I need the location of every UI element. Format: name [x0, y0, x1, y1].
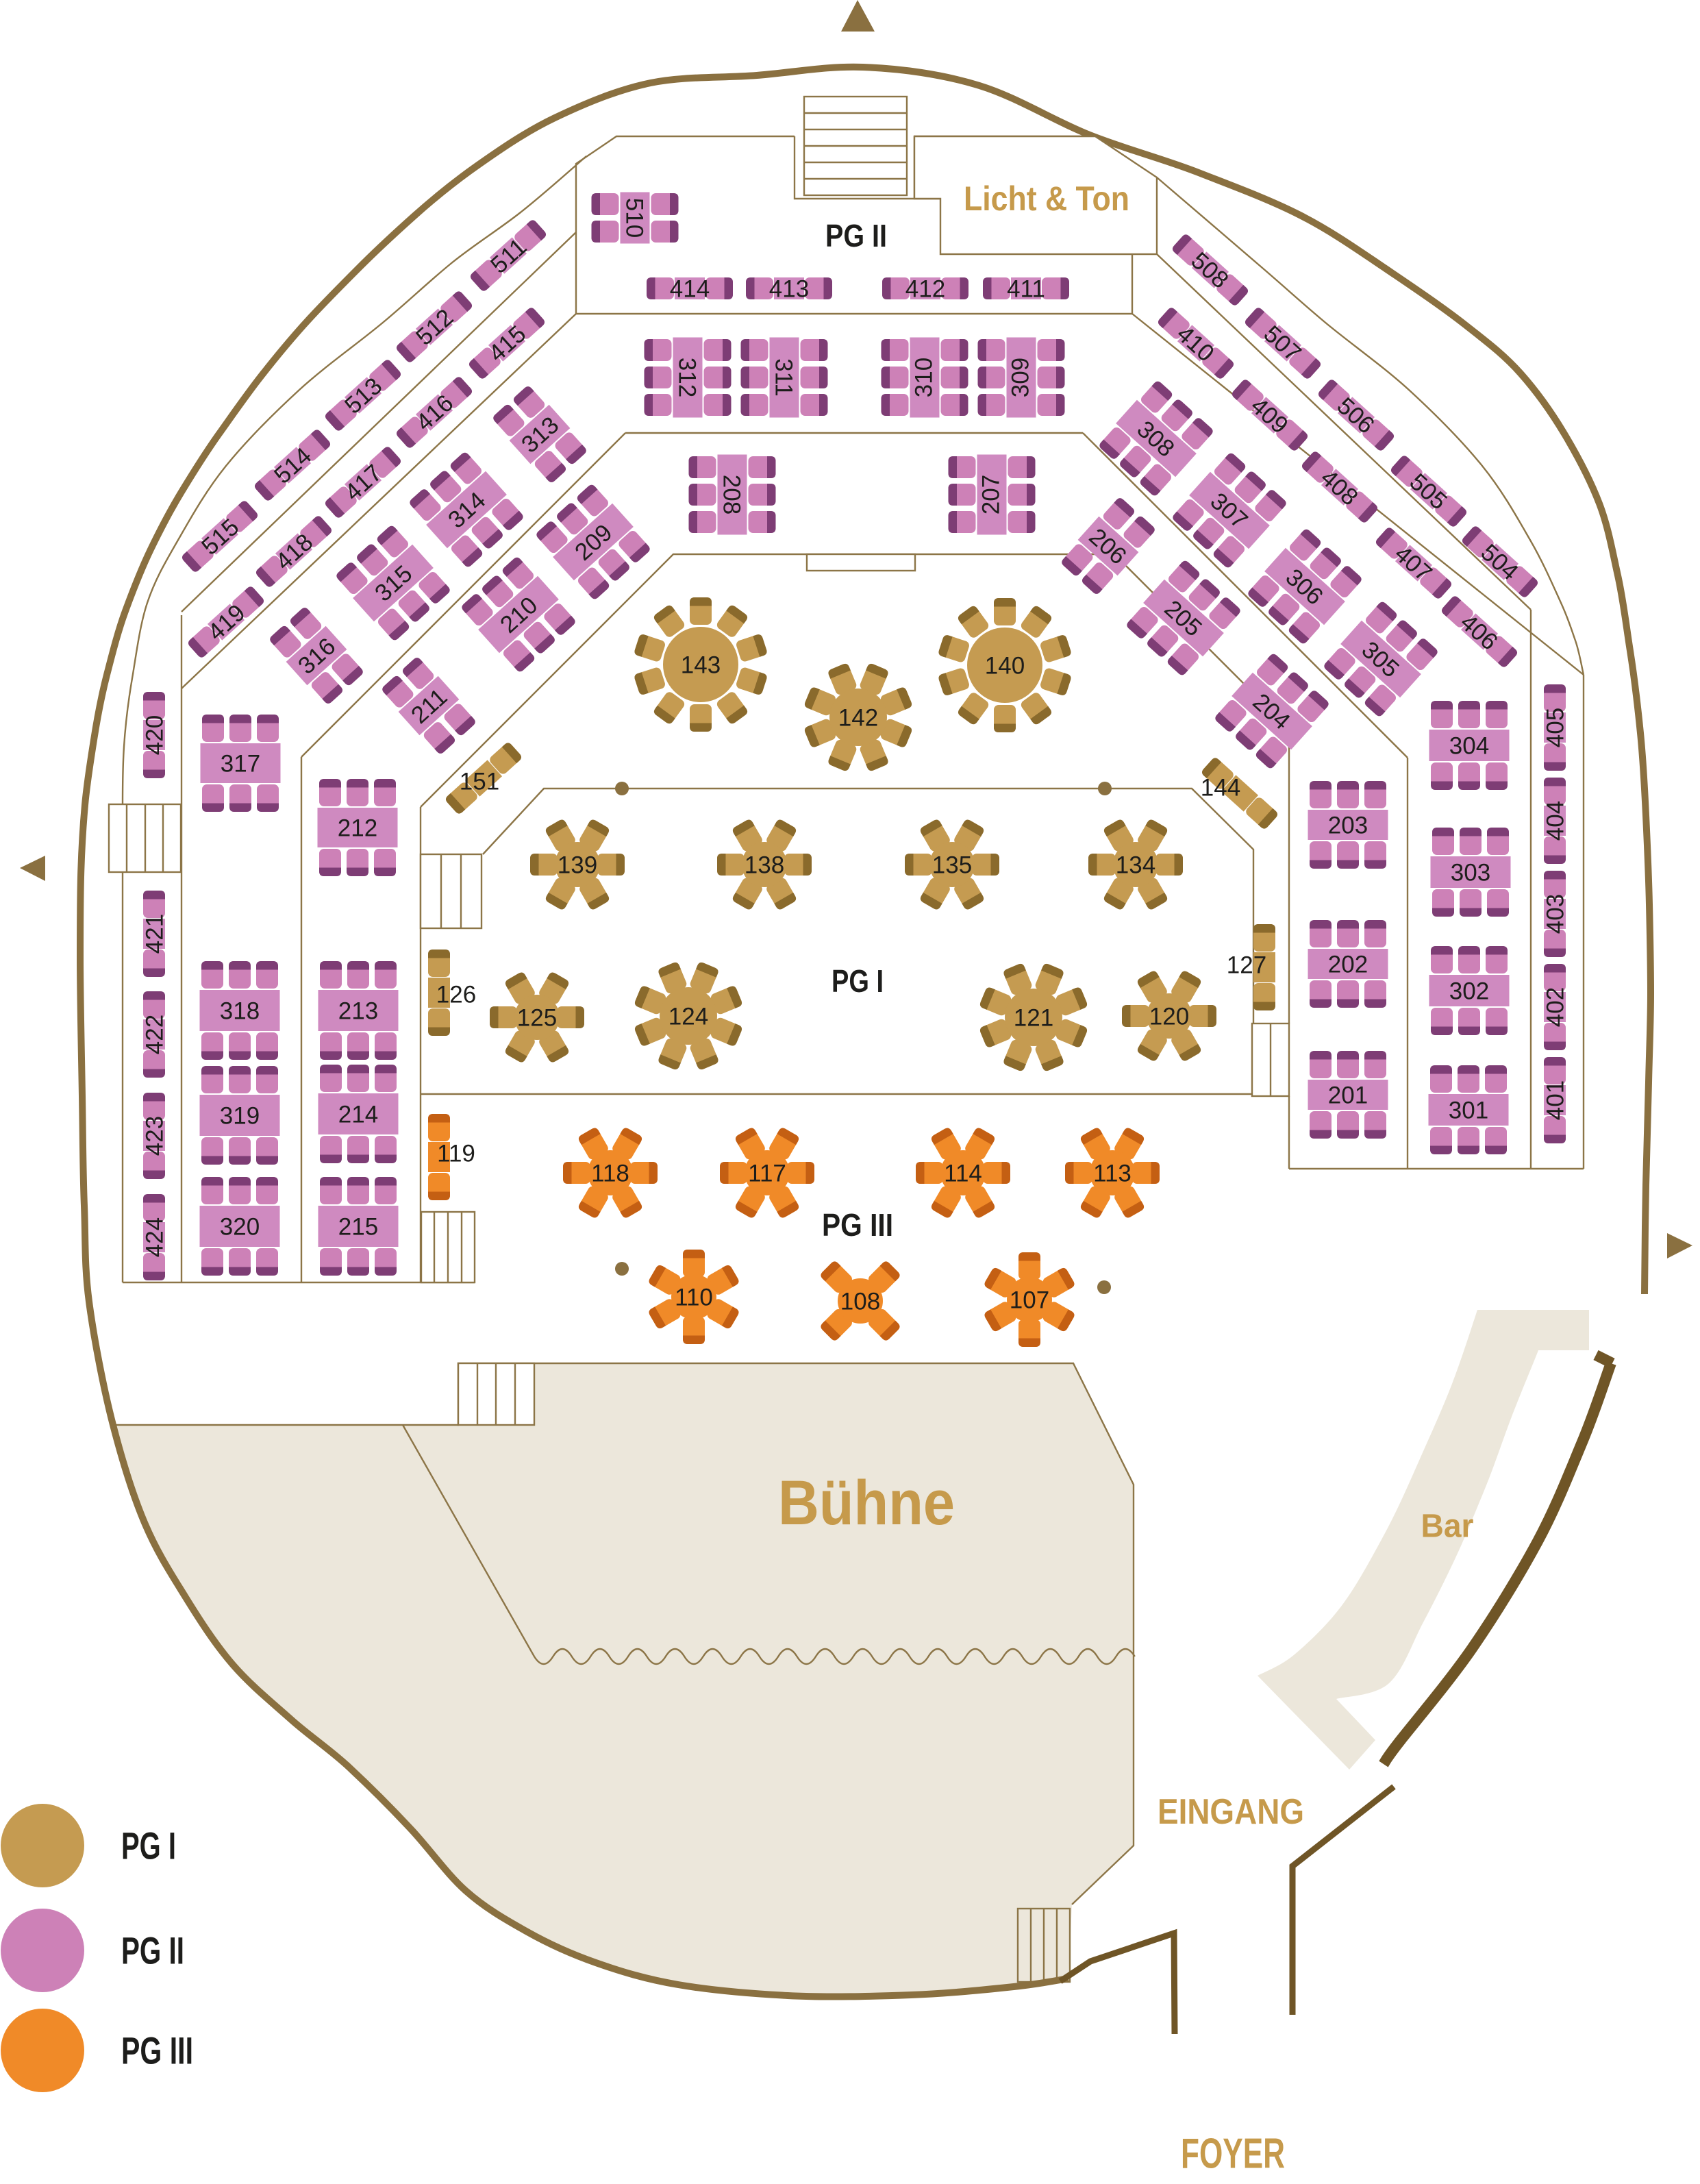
- svg-text:319: 319: [220, 1103, 260, 1130]
- svg-text:424: 424: [142, 1217, 168, 1257]
- svg-text:202: 202: [1328, 952, 1368, 978]
- svg-text:Licht & Ton: Licht & Ton: [964, 179, 1129, 218]
- svg-text:151: 151: [460, 769, 499, 795]
- svg-text:301: 301: [1449, 1097, 1488, 1124]
- svg-text:215: 215: [338, 1214, 378, 1241]
- svg-text:113: 113: [1093, 1161, 1132, 1187]
- svg-text:140: 140: [985, 653, 1025, 680]
- svg-text:422: 422: [142, 1015, 168, 1054]
- svg-text:110: 110: [675, 1285, 713, 1311]
- svg-text:PG II: PG II: [121, 1929, 184, 1972]
- svg-text:139: 139: [558, 852, 597, 879]
- svg-text:125: 125: [517, 1005, 557, 1032]
- svg-text:117: 117: [748, 1161, 786, 1187]
- svg-text:214: 214: [338, 1102, 378, 1128]
- svg-text:317: 317: [221, 751, 260, 778]
- svg-text:PG III: PG III: [822, 1207, 893, 1243]
- svg-text:310: 310: [911, 358, 938, 397]
- svg-text:404: 404: [1542, 801, 1569, 841]
- svg-text:311: 311: [771, 358, 797, 397]
- svg-text:138: 138: [745, 852, 784, 879]
- svg-text:304: 304: [1449, 733, 1489, 760]
- svg-text:411: 411: [1007, 276, 1045, 303]
- svg-text:PG I: PG I: [121, 1824, 176, 1867]
- svg-text:318: 318: [220, 998, 260, 1025]
- svg-text:134: 134: [1116, 852, 1155, 879]
- svg-text:423: 423: [142, 1116, 168, 1156]
- svg-text:207: 207: [978, 475, 1005, 514]
- svg-text:107: 107: [1010, 1287, 1049, 1314]
- svg-text:120: 120: [1149, 1004, 1189, 1030]
- svg-text:121: 121: [1014, 1005, 1053, 1032]
- svg-text:401: 401: [1542, 1080, 1569, 1120]
- svg-text:309: 309: [1008, 358, 1034, 397]
- svg-text:114: 114: [944, 1161, 982, 1187]
- svg-text:142: 142: [838, 705, 878, 732]
- svg-text:124: 124: [668, 1004, 708, 1030]
- svg-text:203: 203: [1328, 812, 1368, 839]
- svg-text:312: 312: [674, 358, 701, 397]
- svg-text:213: 213: [338, 998, 378, 1025]
- svg-text:118: 118: [591, 1161, 629, 1187]
- svg-text:510: 510: [621, 198, 648, 238]
- svg-text:403: 403: [1542, 894, 1569, 934]
- svg-text:FOYER: FOYER: [1181, 2131, 1285, 2178]
- svg-text:414: 414: [670, 276, 710, 303]
- svg-text:PG III: PG III: [121, 2029, 193, 2072]
- svg-text:320: 320: [220, 1214, 260, 1241]
- svg-text:135: 135: [932, 852, 972, 879]
- svg-text:108: 108: [840, 1289, 880, 1315]
- svg-text:412: 412: [905, 276, 945, 303]
- svg-text:144: 144: [1201, 775, 1240, 802]
- svg-text:EINGANG: EINGANG: [1158, 1792, 1304, 1832]
- svg-text:PG I: PG I: [832, 963, 884, 999]
- svg-text:Bar: Bar: [1421, 1509, 1474, 1545]
- svg-text:119: 119: [437, 1141, 475, 1167]
- svg-text:143: 143: [681, 652, 721, 679]
- svg-text:PG II: PG II: [825, 218, 887, 253]
- svg-text:Bühne: Bühne: [778, 1468, 955, 1538]
- svg-text:201: 201: [1328, 1082, 1368, 1109]
- svg-text:212: 212: [338, 815, 377, 842]
- svg-text:302: 302: [1449, 978, 1489, 1005]
- svg-text:303: 303: [1451, 860, 1490, 886]
- svg-text:421: 421: [142, 914, 168, 954]
- svg-text:402: 402: [1542, 987, 1569, 1027]
- svg-text:127: 127: [1227, 952, 1266, 979]
- svg-text:405: 405: [1542, 708, 1569, 747]
- svg-text:420: 420: [142, 715, 168, 755]
- svg-text:126: 126: [436, 982, 476, 1008]
- svg-text:208: 208: [718, 475, 745, 514]
- svg-text:413: 413: [769, 276, 809, 303]
